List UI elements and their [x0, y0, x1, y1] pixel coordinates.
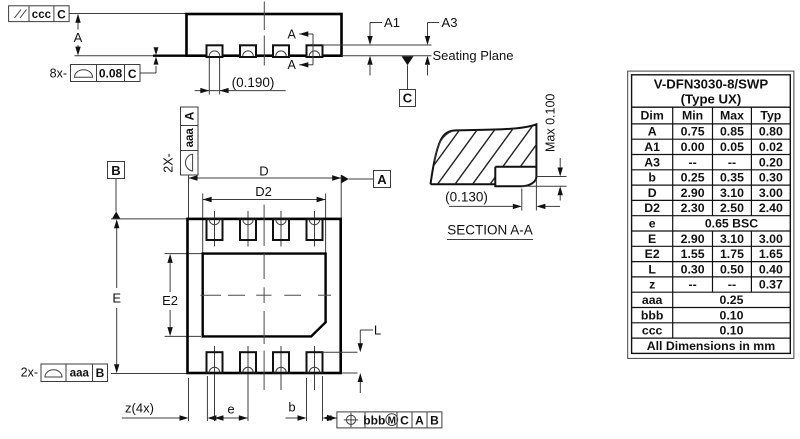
svg-text:A: A: [74, 30, 83, 45]
svg-text:aaa: aaa: [184, 128, 196, 148]
svg-text:Max: Max: [720, 109, 744, 123]
svg-text:A: A: [288, 27, 297, 41]
svg-text:b: b: [648, 171, 656, 185]
svg-text:Seating Plane: Seating Plane: [433, 48, 514, 63]
svg-text:0.00: 0.00: [681, 140, 705, 154]
svg-text:8x-: 8x-: [50, 67, 67, 81]
svg-text:--: --: [728, 278, 736, 292]
svg-text:Min: Min: [682, 109, 703, 123]
svg-text:3.10: 3.10: [720, 186, 744, 200]
svg-text:L: L: [374, 323, 381, 338]
svg-text:0.35: 0.35: [720, 171, 744, 185]
svg-text:A: A: [648, 125, 657, 139]
svg-text:C: C: [128, 67, 137, 81]
svg-text:ccc: ccc: [32, 9, 52, 21]
svg-text:E: E: [112, 290, 121, 305]
svg-text:0.05: 0.05: [720, 140, 744, 154]
svg-text:3.00: 3.00: [759, 232, 783, 246]
svg-text:2.90: 2.90: [681, 232, 705, 246]
svg-text:A1: A1: [384, 15, 400, 30]
svg-text:A: A: [415, 413, 424, 427]
svg-text:ccc: ccc: [642, 324, 663, 338]
svg-text:SECTION A-A: SECTION A-A: [447, 223, 533, 238]
svg-text:1.75: 1.75: [720, 247, 744, 261]
svg-text:Max 0.100: Max 0.100: [544, 94, 558, 152]
svg-text:D: D: [259, 164, 268, 179]
svg-text:bbb: bbb: [641, 308, 664, 322]
svg-text:aaa: aaa: [642, 293, 663, 307]
svg-text:0.40: 0.40: [759, 262, 783, 276]
svg-text:C: C: [400, 413, 409, 427]
svg-text:A1: A1: [644, 140, 660, 154]
svg-text:0.85: 0.85: [720, 125, 744, 139]
svg-text:2X-: 2X-: [162, 153, 176, 172]
svg-text:M: M: [388, 415, 396, 426]
svg-text:A: A: [377, 172, 387, 187]
svg-text:0.50: 0.50: [720, 262, 744, 276]
svg-text:z: z: [649, 278, 655, 292]
svg-text:--: --: [728, 155, 736, 169]
svg-text:All Dimensions in mm: All Dimensions in mm: [647, 339, 776, 353]
svg-text:0.80: 0.80: [759, 125, 783, 139]
svg-text:--: --: [688, 155, 696, 169]
svg-text:A: A: [288, 58, 297, 72]
svg-text:0.30: 0.30: [759, 171, 783, 185]
svg-text:e: e: [649, 217, 656, 231]
svg-text:A3: A3: [644, 155, 660, 169]
svg-text:(Type UX): (Type UX): [681, 92, 742, 107]
svg-text:3.00: 3.00: [759, 186, 783, 200]
svg-text:Dim: Dim: [641, 109, 664, 123]
svg-text:e: e: [227, 401, 234, 416]
svg-text:E2: E2: [645, 247, 660, 261]
svg-text:(0.190): (0.190): [232, 75, 275, 90]
svg-text:2.40: 2.40: [759, 201, 783, 215]
svg-text:2x-: 2x-: [21, 365, 38, 379]
svg-text:2.30: 2.30: [681, 201, 705, 215]
svg-text:0.65 BSC: 0.65 BSC: [705, 217, 758, 231]
svg-text:2.90: 2.90: [681, 186, 705, 200]
svg-text:--: --: [688, 278, 696, 292]
svg-text:0.02: 0.02: [759, 140, 783, 154]
svg-text:(0.130): (0.130): [445, 190, 488, 205]
svg-text:0.37: 0.37: [759, 278, 783, 292]
svg-text:0.30: 0.30: [681, 262, 705, 276]
svg-text:Typ: Typ: [760, 109, 781, 123]
svg-text:z(4x): z(4x): [125, 401, 154, 416]
svg-text:D2: D2: [644, 201, 660, 215]
svg-text:0.10: 0.10: [720, 308, 744, 322]
svg-text:1.55: 1.55: [681, 247, 705, 261]
svg-text:1.65: 1.65: [759, 247, 783, 261]
svg-text:0.10: 0.10: [720, 324, 744, 338]
svg-text:V-DFN3030-8/SWP: V-DFN3030-8/SWP: [654, 77, 769, 92]
svg-text:aaa: aaa: [70, 368, 90, 380]
svg-text:2.50: 2.50: [720, 201, 744, 215]
svg-text:E2: E2: [162, 293, 178, 308]
svg-text:0.25: 0.25: [681, 171, 705, 185]
svg-text:B: B: [96, 366, 105, 380]
svg-text:bbb: bbb: [363, 413, 385, 427]
svg-text:E: E: [648, 232, 656, 246]
svg-text:D: D: [648, 186, 657, 200]
svg-text:A3: A3: [442, 15, 458, 30]
svg-text:b: b: [288, 400, 295, 415]
svg-text:0.25: 0.25: [720, 293, 744, 307]
svg-text:A: A: [183, 111, 197, 120]
svg-text:0.20: 0.20: [759, 155, 783, 169]
svg-text:C: C: [57, 8, 66, 22]
svg-text:D2: D2: [255, 184, 272, 199]
svg-text:0.08: 0.08: [99, 67, 123, 81]
svg-text:L: L: [648, 262, 656, 276]
svg-text:B: B: [430, 413, 439, 427]
svg-text:3.10: 3.10: [720, 232, 744, 246]
svg-text:B: B: [111, 163, 120, 178]
svg-text:0.75: 0.75: [681, 125, 705, 139]
svg-text:C: C: [403, 91, 413, 106]
